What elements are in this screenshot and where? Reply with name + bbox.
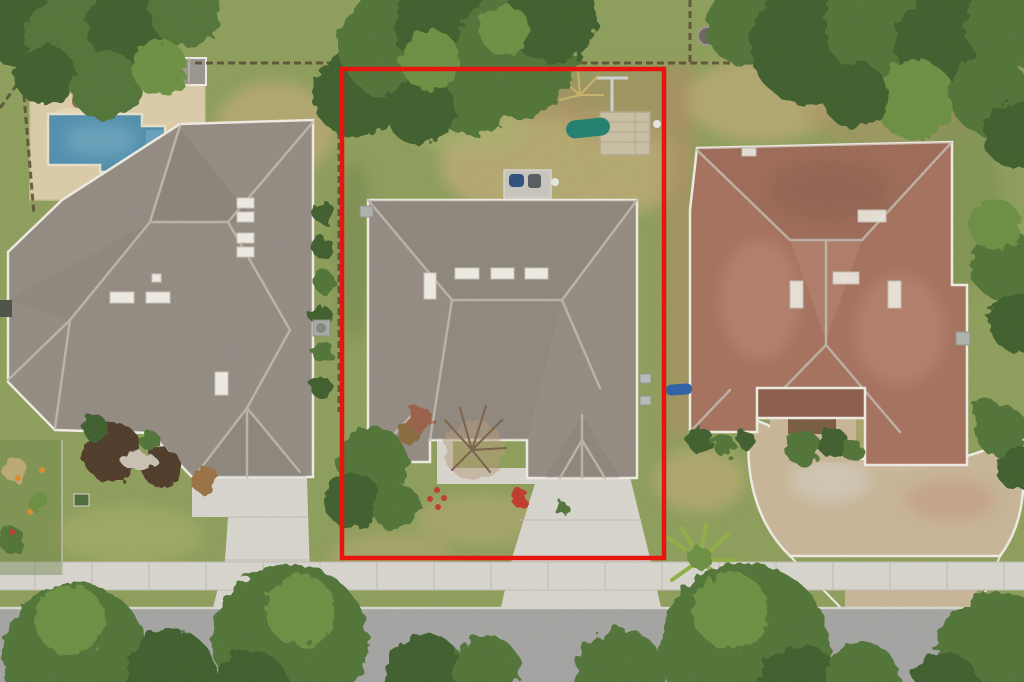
- aerial-photo: [0, 0, 1024, 682]
- photo-grain: [0, 0, 1024, 682]
- aerial-photo-canvas: [0, 0, 1024, 682]
